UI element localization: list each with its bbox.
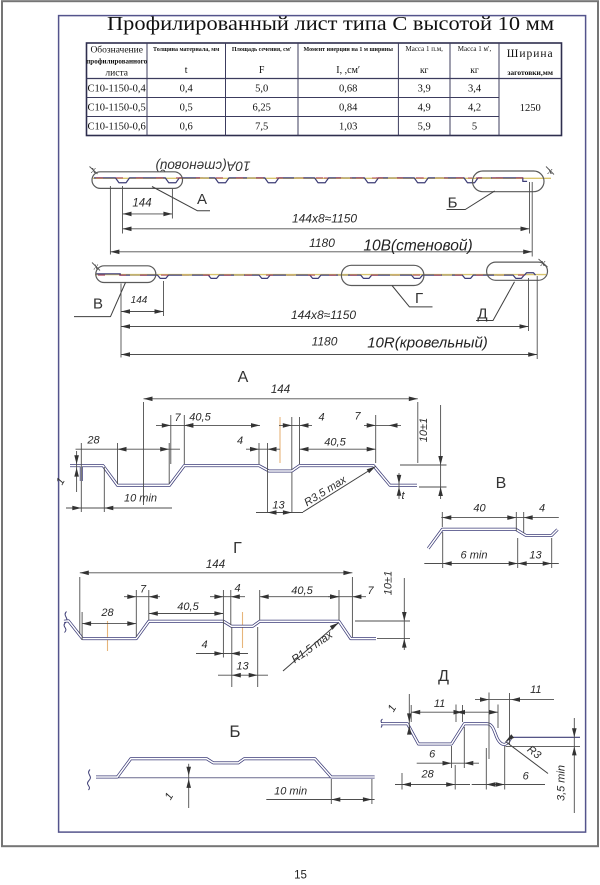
svg-text:Профилированный лист типа С вы: Профилированный лист типа С высотой 10 м… xyxy=(107,13,554,35)
svg-text:F: F xyxy=(259,65,265,76)
svg-text:144: 144 xyxy=(271,384,290,396)
svg-text:5,9: 5,9 xyxy=(418,122,431,133)
svg-text:0,6: 0,6 xyxy=(180,122,193,133)
svg-text:10R(кровельный): 10R(кровельный) xyxy=(367,335,488,352)
svg-text:Б: Б xyxy=(229,722,240,741)
svg-text:11: 11 xyxy=(530,684,541,696)
svg-text:13: 13 xyxy=(529,550,542,562)
svg-text:С10-1150-0,6: С10-1150-0,6 xyxy=(88,122,146,133)
svg-text:10В(стеновой): 10В(стеновой) xyxy=(363,238,472,255)
svg-text:0,68: 0,68 xyxy=(339,84,357,95)
svg-text:1: 1 xyxy=(54,476,67,487)
svg-text:6: 6 xyxy=(429,749,436,761)
svg-text:Г: Г xyxy=(415,290,423,307)
svg-text:28: 28 xyxy=(86,435,100,447)
svg-text:3,5 min: 3,5 min xyxy=(556,765,568,801)
svg-text:15: 15 xyxy=(294,870,307,882)
svg-text:40,5: 40,5 xyxy=(189,412,211,424)
svg-text:1250: 1250 xyxy=(520,103,541,114)
svg-text:4: 4 xyxy=(318,412,324,424)
svg-text:1,03: 1,03 xyxy=(339,122,357,133)
svg-text:t: t xyxy=(401,490,405,502)
svg-text:Б: Б xyxy=(448,195,458,212)
svg-text:7: 7 xyxy=(354,411,361,423)
svg-text:0,4: 0,4 xyxy=(180,84,194,95)
svg-text:11: 11 xyxy=(434,698,445,710)
svg-text:13: 13 xyxy=(236,661,249,673)
svg-text:А: А xyxy=(197,191,207,208)
svg-text:4: 4 xyxy=(234,583,240,595)
svg-text:Обозначение: Обозначение xyxy=(90,45,143,56)
svg-text:7: 7 xyxy=(174,412,181,424)
svg-text:7,5: 7,5 xyxy=(255,122,268,133)
svg-text:А: А xyxy=(238,369,249,386)
svg-text:28: 28 xyxy=(420,769,434,781)
svg-text:4: 4 xyxy=(237,435,243,447)
svg-text:С10-1150-0,4: С10-1150-0,4 xyxy=(88,84,147,95)
svg-text:6: 6 xyxy=(523,771,530,783)
svg-text:профилированного: профилированного xyxy=(86,58,147,66)
svg-text:4: 4 xyxy=(539,503,545,515)
svg-text:10 min: 10 min xyxy=(274,786,307,798)
svg-text:Д: Д xyxy=(477,306,487,323)
svg-text:кг: кг xyxy=(420,66,429,76)
svg-text:4,9: 4,9 xyxy=(418,103,431,114)
svg-text:Ширина: Ширина xyxy=(507,48,554,60)
svg-text:40: 40 xyxy=(473,503,486,515)
svg-text:Масса 1 м′,: Масса 1 м′, xyxy=(458,45,492,53)
svg-text:5,0: 5,0 xyxy=(255,84,268,95)
svg-text:Момент инерции на 1 м ширины: Момент инерции на 1 м ширины xyxy=(303,47,393,53)
svg-text:13: 13 xyxy=(272,500,285,512)
svg-text:144: 144 xyxy=(206,559,225,571)
svg-text:1: 1 xyxy=(163,791,176,802)
svg-text:144: 144 xyxy=(131,295,148,306)
svg-text:10±1: 10±1 xyxy=(383,571,395,595)
svg-text:28: 28 xyxy=(100,607,114,619)
svg-text:4: 4 xyxy=(201,639,207,651)
svg-text:40,5: 40,5 xyxy=(291,585,313,597)
svg-text:1180: 1180 xyxy=(312,335,338,349)
svg-text:1180: 1180 xyxy=(309,236,335,250)
svg-text:R3,5 max: R3,5 max xyxy=(302,474,349,509)
svg-text:144x8≈1150: 144x8≈1150 xyxy=(292,212,357,226)
svg-text:x: x xyxy=(93,262,99,273)
svg-text:I, ,см′: I, ,см′ xyxy=(336,65,360,76)
svg-text:R1,5 max: R1,5 max xyxy=(290,629,336,666)
svg-text:заготовки,мм: заготовки,мм xyxy=(507,68,553,77)
svg-text:6 min: 6 min xyxy=(461,550,488,562)
svg-text:Д: Д xyxy=(438,668,449,685)
svg-text:7: 7 xyxy=(140,584,147,596)
svg-text:7: 7 xyxy=(367,585,374,597)
svg-text:Г: Г xyxy=(233,540,242,557)
svg-text:1: 1 xyxy=(386,703,399,714)
svg-text:Площадь сечения, см′: Площадь сечения, см′ xyxy=(232,47,292,53)
svg-text:В: В xyxy=(496,475,507,492)
svg-text:10±1: 10±1 xyxy=(418,418,430,442)
svg-text:0,84: 0,84 xyxy=(339,103,358,114)
svg-text:Толщина материала, мм: Толщина материала, мм xyxy=(153,47,219,53)
svg-text:С10-1150-0,5: С10-1150-0,5 xyxy=(88,103,146,114)
svg-text:4,2: 4,2 xyxy=(468,103,481,114)
svg-text:0,5: 0,5 xyxy=(180,103,193,114)
svg-text:В: В xyxy=(93,296,103,313)
svg-text:Масса 1 п.м,: Масса 1 п.м, xyxy=(405,45,443,53)
svg-text:144x8≈1150: 144x8≈1150 xyxy=(291,308,356,322)
svg-text:кг: кг xyxy=(470,66,479,76)
svg-text:40,5: 40,5 xyxy=(177,601,199,613)
svg-text:144: 144 xyxy=(132,198,151,210)
svg-text:t: t xyxy=(185,65,188,76)
svg-text:3,4: 3,4 xyxy=(468,84,482,95)
svg-text:3,9: 3,9 xyxy=(418,84,431,95)
svg-text:6,25: 6,25 xyxy=(253,103,271,114)
svg-text:5: 5 xyxy=(472,122,477,133)
svg-text:40,5: 40,5 xyxy=(324,437,346,449)
svg-text:листа: листа xyxy=(105,69,128,79)
svg-text:10 min: 10 min xyxy=(124,493,157,505)
svg-text:x: x xyxy=(547,165,553,177)
